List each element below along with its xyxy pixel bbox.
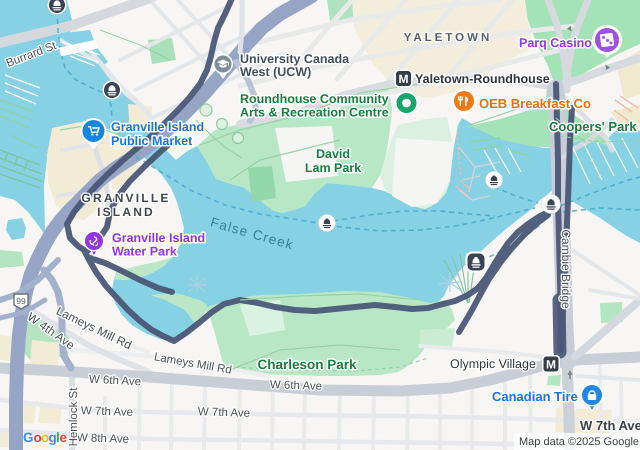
svg-text:e: e: [60, 430, 68, 445]
svg-text:W 7th Ave: W 7th Ave: [580, 418, 640, 433]
svg-text:University Canada: University Canada: [240, 52, 350, 66]
svg-text:M: M: [399, 72, 409, 86]
svg-text:M: M: [546, 357, 556, 371]
svg-text:Parq Casino: Parq Casino: [519, 36, 592, 50]
svg-text:99: 99: [16, 296, 26, 306]
svg-text:W 6th Ave: W 6th Ave: [270, 379, 323, 393]
svg-text:Granville Island: Granville Island: [111, 120, 204, 134]
svg-text:Arts & Recreation Centre: Arts & Recreation Centre: [240, 106, 389, 120]
svg-text:Yaletown-Roundhouse: Yaletown-Roundhouse: [415, 72, 550, 86]
svg-text:YALETOWN: YALETOWN: [404, 32, 493, 44]
svg-text:G: G: [23, 430, 34, 445]
svg-text:Map data ©2025 Google: Map data ©2025 Google: [519, 436, 639, 448]
svg-text:Coopers' Park: Coopers' Park: [549, 119, 637, 134]
svg-text:Lam Park: Lam Park: [305, 161, 361, 175]
svg-text:Public Market: Public Market: [111, 134, 193, 148]
svg-text:Granville Island: Granville Island: [112, 231, 205, 245]
svg-text:David: David: [316, 147, 350, 161]
svg-text:Water Park: Water Park: [112, 245, 177, 259]
svg-text:Cambie Bridge: Cambie Bridge: [559, 229, 573, 309]
svg-text:W 8th Ave: W 8th Ave: [77, 432, 130, 446]
svg-text:West (UCW): West (UCW): [240, 65, 311, 79]
svg-text:W 7th Ave: W 7th Ave: [198, 406, 251, 420]
svg-text:GRANVILLE: GRANVILLE: [81, 191, 170, 205]
svg-text:Roundhouse Community: Roundhouse Community: [240, 92, 389, 106]
svg-text:Charleson Park: Charleson Park: [257, 357, 357, 372]
svg-text:ISLAND: ISLAND: [97, 205, 155, 219]
svg-text:Canadian Tire: Canadian Tire: [492, 389, 578, 404]
svg-text:Hemlock St: Hemlock St: [68, 387, 80, 447]
svg-text:W 7th Ave: W 7th Ave: [81, 405, 134, 419]
svg-text:Olympic Village: Olympic Village: [450, 357, 536, 371]
svg-text:OEB Breakfast Co: OEB Breakfast Co: [479, 96, 591, 111]
